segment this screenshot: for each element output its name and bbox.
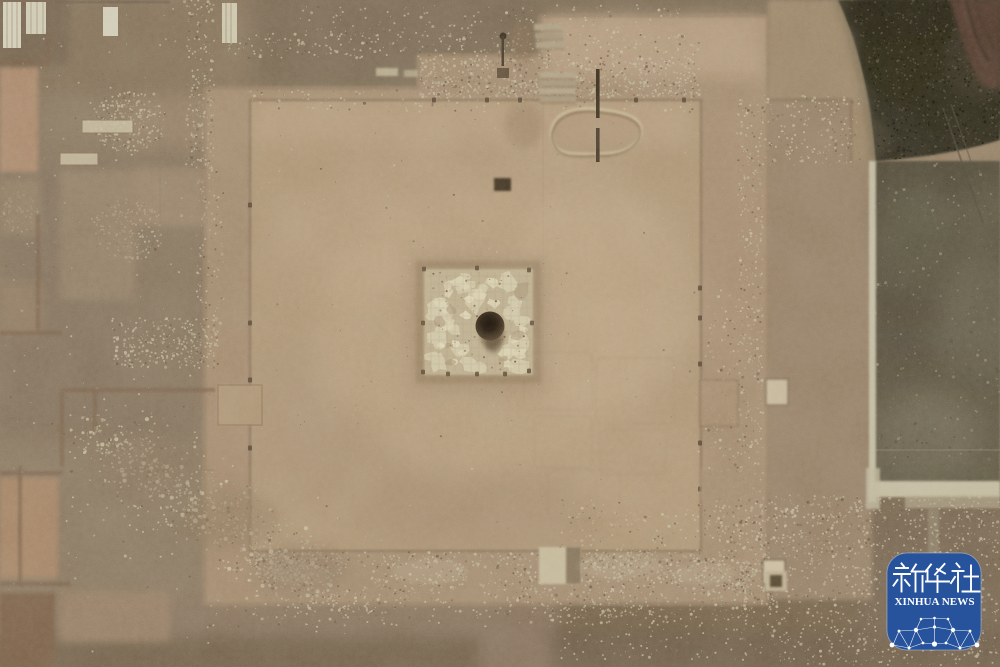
svg-text:XINHUA NEWS: XINHUA NEWS [895,596,975,608]
